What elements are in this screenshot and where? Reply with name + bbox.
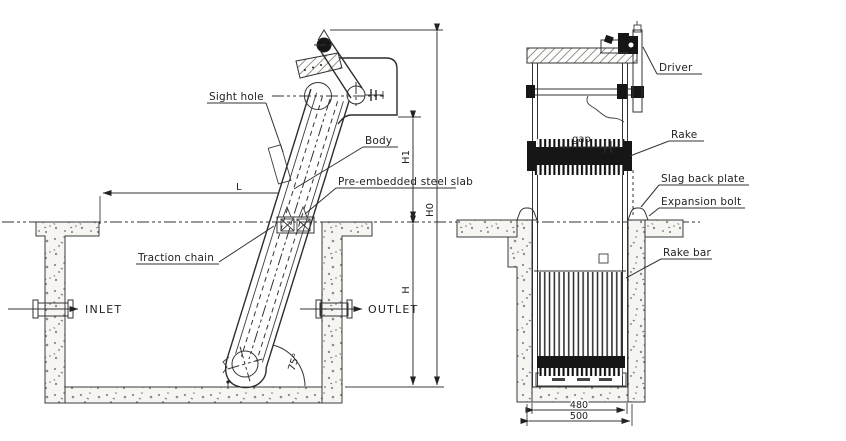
rake-teeth <box>534 165 624 175</box>
ground-slab-right <box>645 220 683 237</box>
channel-floor <box>45 387 342 403</box>
rake-beam <box>530 147 629 165</box>
dim-H-text: H <box>401 286 412 294</box>
rake-bar-label: Rake bar <box>663 247 712 259</box>
dim-500-text: 500 <box>570 411 588 422</box>
body-label: Body <box>365 135 392 147</box>
dim-L-text: L <box>236 182 242 193</box>
rake-label: Rake <box>671 129 697 141</box>
dim-H1-text: H1 <box>401 150 412 164</box>
drawing-sheet: INLET OUTLET <box>0 0 846 441</box>
lower-rake-beam <box>537 356 625 368</box>
expansion-bolt-label: Expansion bolt <box>661 196 741 208</box>
sight-hole-label: Sight hole <box>209 91 264 103</box>
dim-480-text: 480 <box>570 400 588 411</box>
traction-chain-label: Traction chain <box>137 252 214 264</box>
dim-gap-text: gap <box>572 134 591 145</box>
ground-slab-left <box>457 220 517 237</box>
outlet-label: OUTLET <box>368 303 418 316</box>
slag-back-plate-label: Slag back plate <box>661 173 745 185</box>
inlet-label: INLET <box>85 303 122 316</box>
bar-rack <box>534 271 626 376</box>
technical-drawing: INLET OUTLET <box>0 0 846 441</box>
pit-right-wall <box>628 220 645 402</box>
pre-embedded-slab-label: Pre-embedded steel slab <box>338 176 473 188</box>
dim-H0-text: H0 <box>425 203 436 217</box>
paper-background <box>0 0 846 441</box>
driver-label: Driver <box>659 62 693 74</box>
